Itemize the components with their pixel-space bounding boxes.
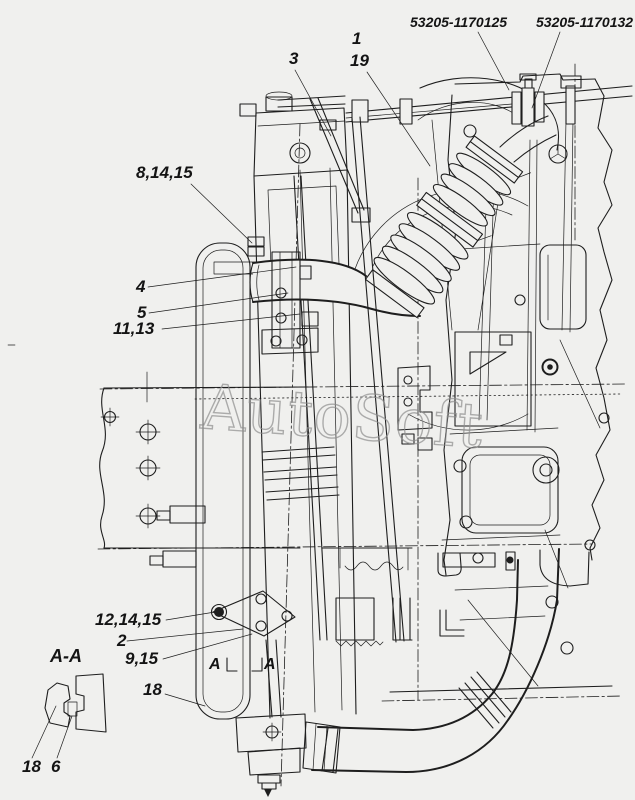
callout-12-14-15: 12,14,15 (95, 610, 162, 629)
section-marker-left-label: A (208, 656, 221, 673)
callout-2: 2 (116, 631, 127, 650)
callout-19: 19 (350, 51, 369, 70)
callout-4: 4 (135, 277, 146, 296)
callout-1: 1 (352, 29, 361, 48)
callout-8-14-15: 8,14,15 (136, 163, 193, 182)
callout-9-15: 9,15 (125, 649, 159, 668)
part-number-left: 53205-1170125 (410, 14, 507, 30)
section-callout-18: 18 (22, 757, 41, 776)
callout-11-13: 11,13 (113, 319, 155, 338)
callout-18: 18 (143, 680, 162, 699)
section-marker-right-label: A (263, 656, 276, 673)
diagram-page: A A A-A 18 6 53205-1170125 53205-1170132… (0, 0, 635, 800)
section-callout-6: 6 (51, 757, 61, 776)
parts-diagram: A A A-A 18 6 53205-1170125 53205-1170132… (0, 0, 635, 800)
part-number-right: 53205-1170132 (536, 14, 633, 30)
section-view-title: A-A (49, 646, 82, 666)
callout-3: 3 (289, 49, 299, 68)
